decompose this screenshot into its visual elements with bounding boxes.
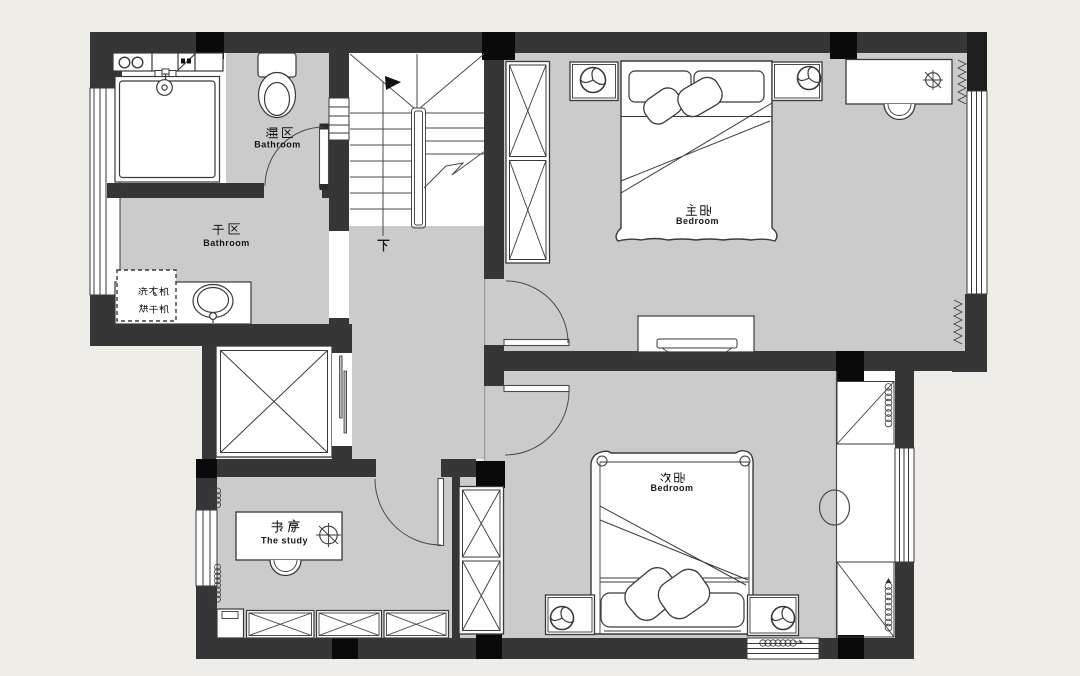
svg-text:Bedroom: Bedroom: [650, 483, 693, 493]
svg-text:Bathroom: Bathroom: [203, 238, 250, 248]
svg-text:Bathroom: Bathroom: [254, 140, 301, 150]
svg-text:Bedroom: Bedroom: [676, 216, 719, 226]
svg-text:The study: The study: [261, 536, 308, 546]
